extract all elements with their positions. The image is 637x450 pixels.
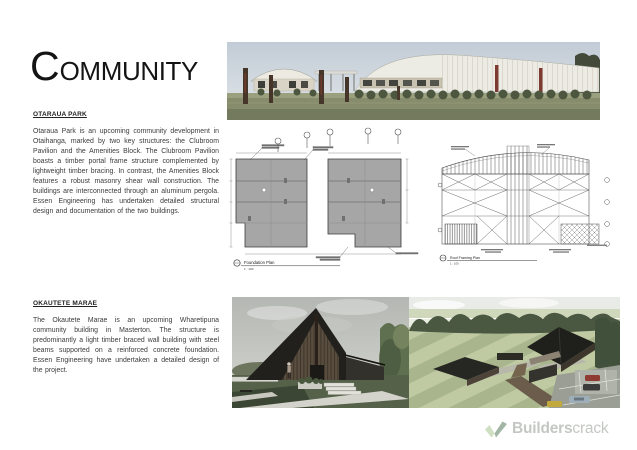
- dark-car: [583, 384, 600, 391]
- foundation-plan-drawing: Foundation Plan 1 : 100: [228, 126, 428, 273]
- yellow-car: [547, 401, 562, 407]
- otaraua-heading: OTARAUA PARK: [33, 111, 219, 118]
- okautete-heading: OKAUTETE MARAE: [33, 300, 219, 307]
- red-car: [585, 375, 600, 381]
- section-okautete-marae: OKAUTETE MARAE The Okautete Marae is an …: [33, 300, 219, 376]
- drawing-title-text: Foundation Plan: [244, 260, 275, 265]
- page-title: COMMUNITY: [30, 46, 198, 87]
- hatched-room-right: [561, 224, 599, 244]
- title-rest: OMMUNITY: [60, 56, 198, 86]
- okautete-marae-render-image: [232, 297, 409, 408]
- portfolio-page: COMMUNITY OTARAUA PARK Otaraua Park is a…: [0, 0, 637, 450]
- roof-framing-plan-drawing: Roof Framing Plan 1 : 100: [437, 140, 625, 266]
- okautete-body-text: The Okautete Marae is an upcoming Wharet…: [33, 316, 219, 376]
- drawing-title-text: Roof Framing Plan: [450, 256, 480, 260]
- right-slab: [328, 159, 401, 247]
- otaraua-body-text: Otaraua Park is an upcoming community de…: [33, 127, 219, 217]
- left-slab: [236, 159, 307, 247]
- builderscrack-check-icon: [485, 421, 507, 438]
- drawing-scale-text: 1 : 100: [244, 267, 254, 271]
- builderscrack-logo: Builderscrack: [485, 420, 608, 438]
- central-corridor: [507, 146, 529, 244]
- otaraua-park-render-image: [227, 42, 600, 120]
- okautete-marae-aerial-render-image: [409, 297, 620, 408]
- logo-text-light: crack: [572, 420, 608, 437]
- roof-plan-graphic: Roof Framing Plan 1 : 100: [437, 140, 625, 266]
- foundation-plan-graphic: Foundation Plan 1 : 100: [228, 126, 428, 273]
- aerial-render-graphic: [409, 297, 620, 408]
- otaraua-render-graphic: [227, 42, 600, 120]
- hatched-room-left: [445, 224, 477, 244]
- drawing-scale-text: 1 : 100: [450, 261, 459, 265]
- logo-text-bold: Builders: [512, 420, 572, 437]
- marae-render-graphic: [232, 297, 409, 408]
- title-initial: C: [30, 43, 60, 89]
- builderscrack-wordmark: Builderscrack: [512, 420, 608, 438]
- section-otaraua-park: OTARAUA PARK Otaraua Park is an upcoming…: [33, 111, 219, 217]
